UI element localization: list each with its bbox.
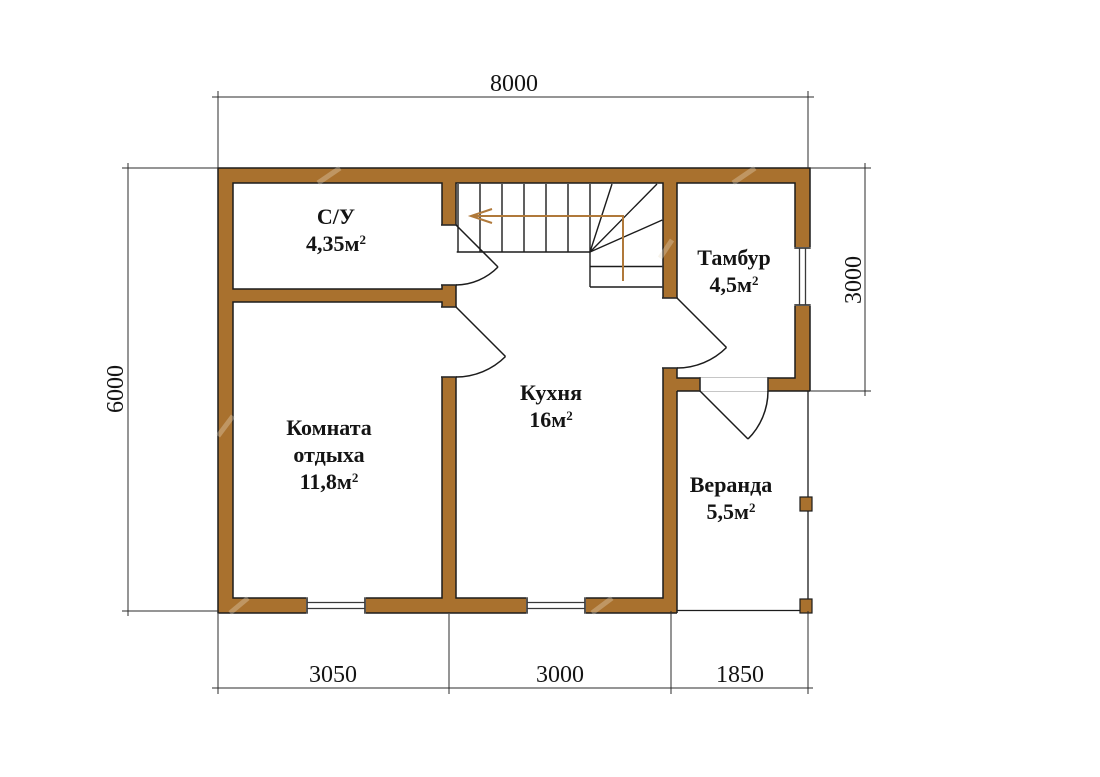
room-label-kuhnya: Кухня 16м2 (520, 379, 582, 433)
dimension-right: 3000 (842, 256, 866, 304)
window-kuhnya (526, 597, 586, 615)
room-name: Кухня (520, 379, 582, 406)
room-area: 11,8м2 (254, 468, 404, 495)
veranda-post-top (800, 497, 812, 511)
room-label-tambur: Тамбур 4,5м2 (697, 244, 771, 298)
dimension-line-left (122, 163, 218, 616)
room-label-veranda: Веранда 5,5м2 (690, 471, 772, 525)
room-name: С/У (306, 203, 366, 230)
room-area: 16м2 (520, 406, 582, 433)
room-name: Комната отдыха (254, 414, 404, 468)
dimension-bottom-middle: 3000 (536, 663, 584, 687)
room-area: 4,5м2 (697, 271, 771, 298)
room-label-komnata: Комната отдыха 11,8м2 (254, 414, 404, 495)
window-tambur (794, 247, 812, 306)
dimension-bottom-right: 1850 (716, 663, 764, 687)
dimension-line-top (212, 91, 814, 168)
room-label-su: С/У 4,35м2 (306, 203, 366, 257)
dimension-bottom-left: 3050 (309, 663, 357, 687)
dimension-top: 8000 (490, 72, 538, 96)
room-area: 5,5м2 (690, 498, 772, 525)
window-komnata (306, 597, 366, 615)
floor-plan: С/У 4,35м2 Комната отдыха 11,8м2 Кухня 1… (0, 0, 1100, 777)
room-name: Тамбур (697, 244, 771, 271)
room-name: Веранда (690, 471, 772, 498)
veranda-post-bottom (800, 599, 812, 613)
dimension-left: 6000 (104, 365, 128, 413)
room-area: 4,35м2 (306, 230, 366, 257)
